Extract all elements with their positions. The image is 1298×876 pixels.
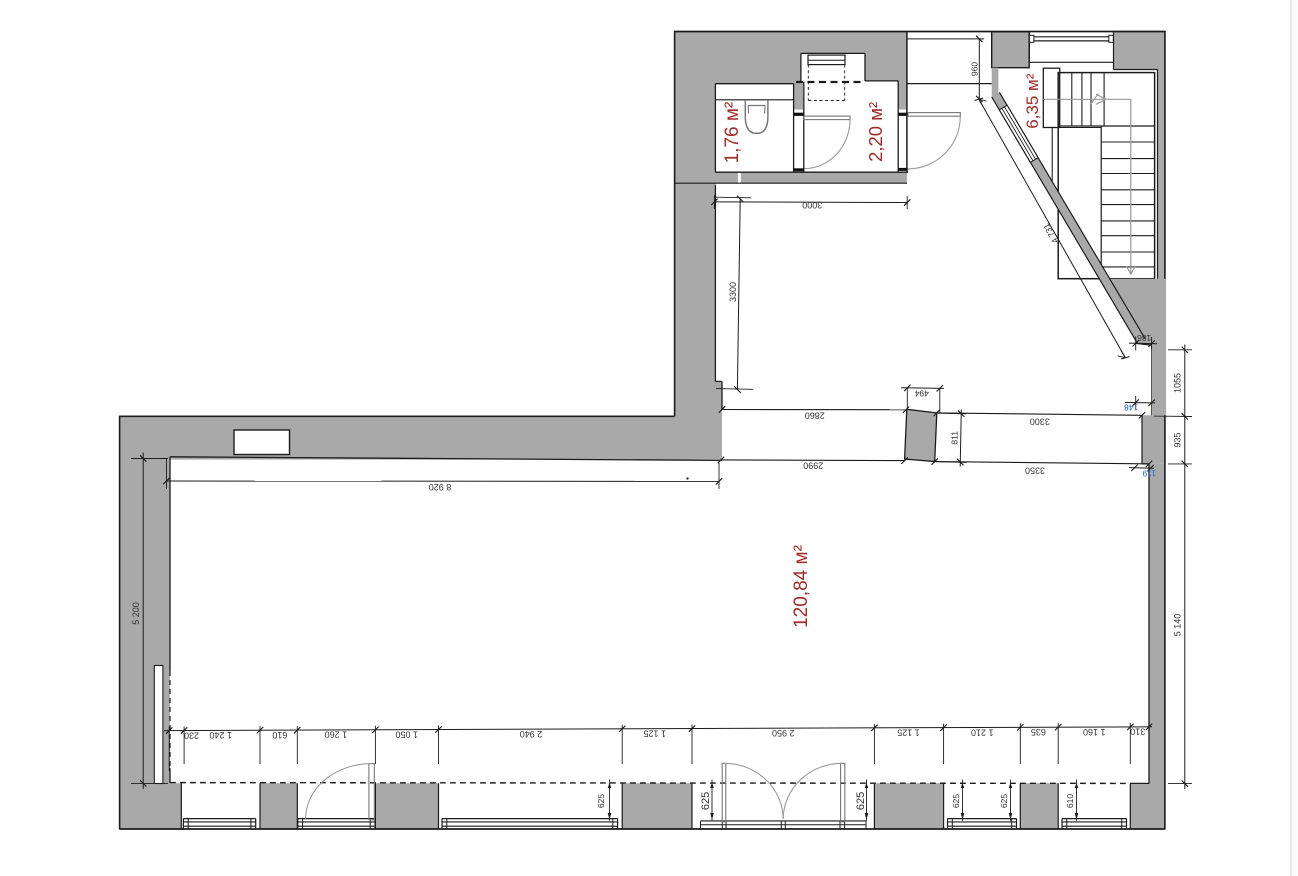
svg-text:119: 119 — [1142, 469, 1156, 479]
svg-text:1 050: 1 050 — [395, 730, 418, 740]
svg-text:1 125: 1 125 — [897, 728, 920, 738]
svg-text:2,20 м²: 2,20 м² — [865, 102, 886, 162]
svg-text:6,35 м²: 6,35 м² — [1023, 73, 1042, 128]
svg-text:1,76 м²: 1,76 м² — [722, 102, 743, 164]
svg-text:230: 230 — [184, 730, 199, 740]
svg-text:935: 935 — [1172, 432, 1182, 447]
svg-text:2 950: 2 950 — [772, 728, 795, 738]
svg-text:1 160: 1 160 — [1083, 727, 1106, 737]
svg-text:310: 310 — [1130, 727, 1145, 737]
svg-text:186: 186 — [1137, 333, 1151, 343]
svg-text:635: 635 — [1031, 727, 1046, 737]
svg-text:960: 960 — [969, 62, 979, 76]
svg-text:1 240: 1 240 — [209, 730, 232, 740]
svg-text:494: 494 — [914, 389, 928, 399]
svg-text:610: 610 — [1065, 794, 1075, 808]
svg-text:2990: 2990 — [803, 461, 823, 471]
svg-text:5 140: 5 140 — [1172, 614, 1182, 637]
svg-text:625: 625 — [596, 794, 606, 808]
svg-text:3350: 3350 — [1025, 465, 1045, 475]
svg-text:610: 610 — [272, 730, 287, 740]
svg-text:625: 625 — [951, 794, 961, 808]
svg-text:1 125: 1 125 — [644, 729, 667, 739]
svg-text:3300: 3300 — [728, 282, 738, 302]
svg-text:625: 625 — [700, 792, 712, 810]
svg-text:1055: 1055 — [1172, 373, 1182, 393]
svg-text:3300: 3300 — [1030, 416, 1050, 426]
svg-text:120,84 м²: 120,84 м² — [791, 545, 812, 628]
svg-text:3000: 3000 — [802, 200, 822, 210]
svg-text:625: 625 — [855, 792, 867, 810]
svg-text:625: 625 — [999, 794, 1009, 808]
svg-text:148: 148 — [1124, 402, 1138, 412]
svg-text:2860: 2860 — [805, 411, 825, 421]
svg-text:811: 811 — [949, 431, 959, 445]
svg-text:1 210: 1 210 — [971, 727, 994, 737]
svg-text:5 200: 5 200 — [131, 602, 141, 625]
svg-text:2 940: 2 940 — [520, 729, 543, 739]
svg-text:8 920: 8 920 — [429, 482, 452, 492]
svg-text:1 260: 1 260 — [325, 730, 348, 740]
